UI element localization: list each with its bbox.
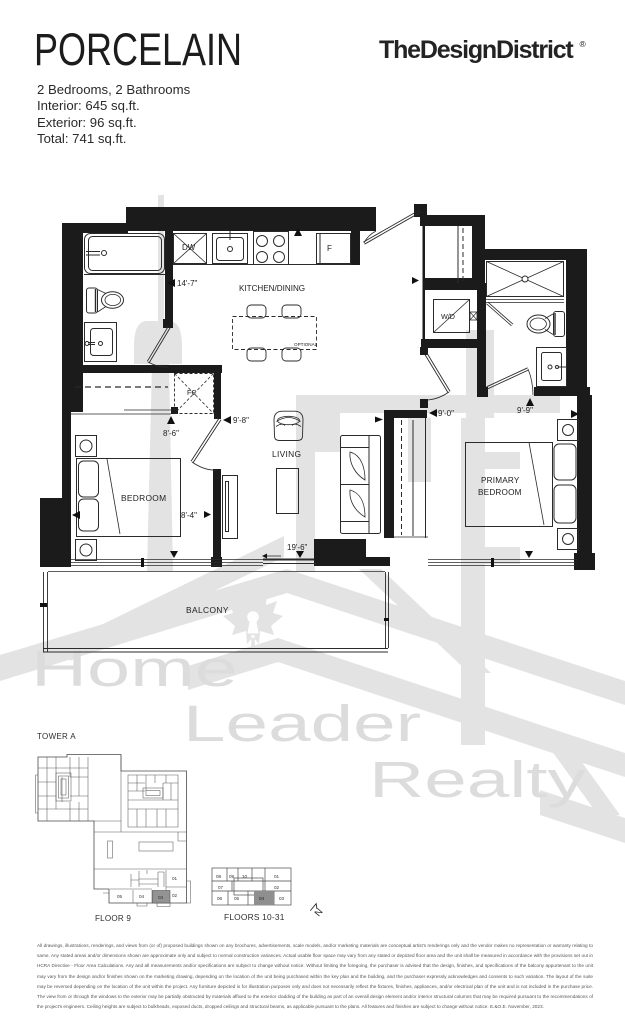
svg-text:W/D: W/D <box>441 312 455 321</box>
svg-text:8'-4": 8'-4" <box>181 511 197 520</box>
svg-text:02: 02 <box>172 893 178 898</box>
svg-text:PRIMARY: PRIMARY <box>481 476 520 485</box>
svg-text:05: 05 <box>117 894 123 899</box>
svg-text:14'-7": 14'-7" <box>177 279 198 288</box>
svg-text:01: 01 <box>274 874 280 879</box>
svg-text:08: 08 <box>216 874 222 879</box>
svg-text:9'-8": 9'-8" <box>233 416 249 425</box>
svg-text:DW: DW <box>182 243 196 252</box>
svg-text:LIVING: LIVING <box>272 449 301 459</box>
svg-text:10: 10 <box>242 874 248 879</box>
svg-text:03: 03 <box>279 896 285 901</box>
svg-text:02: 02 <box>274 885 280 890</box>
svg-text:FC: FC <box>187 388 197 397</box>
svg-text:06: 06 <box>217 896 223 901</box>
svg-text:F: F <box>327 244 332 253</box>
svg-text:FLOORS 10-31: FLOORS 10-31 <box>224 912 285 922</box>
svg-text:BALCONY: BALCONY <box>186 605 229 615</box>
svg-text:19'-6": 19'-6" <box>287 543 308 552</box>
svg-text:8'-6": 8'-6" <box>163 429 179 438</box>
svg-text:OPTIONAL: OPTIONAL <box>294 342 318 347</box>
svg-text:BEDROOM: BEDROOM <box>121 493 166 503</box>
svg-text:N: N <box>313 906 326 918</box>
svg-text:01: 01 <box>172 876 178 881</box>
svg-text:04: 04 <box>139 894 145 899</box>
svg-text:Leader: Leader <box>183 695 421 752</box>
svg-text:03: 03 <box>158 895 164 900</box>
svg-text:9'-0": 9'-0" <box>438 409 454 418</box>
svg-text:04: 04 <box>259 896 265 901</box>
svg-text:07: 07 <box>218 885 224 890</box>
svg-text:BEDROOM: BEDROOM <box>478 488 522 497</box>
svg-text:Realty: Realty <box>369 751 586 808</box>
svg-text:TOWER A: TOWER A <box>37 732 76 741</box>
svg-text:9'-9": 9'-9" <box>517 406 533 415</box>
svg-text:FLOOR 9: FLOOR 9 <box>95 914 131 923</box>
svg-text:09: 09 <box>229 874 235 879</box>
svg-text:KITCHEN/DINING: KITCHEN/DINING <box>239 284 305 293</box>
svg-text:05: 05 <box>234 896 240 901</box>
